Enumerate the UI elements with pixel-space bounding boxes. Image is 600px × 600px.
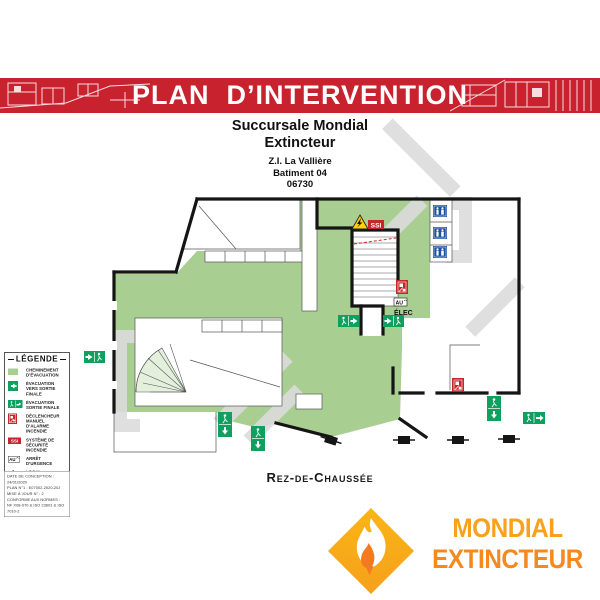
legend-item: ÉVACUATION SORTIE FINALE	[8, 400, 66, 410]
toilets-icon	[433, 205, 447, 258]
logo-line1: MONDIAL	[429, 513, 587, 544]
room-upper-left	[183, 199, 300, 249]
company-logo: MONDIAL EXTINCTEUR	[325, 505, 595, 597]
svg-text:AU: AU	[396, 300, 404, 306]
emergency-stop-icon: AU	[8, 456, 23, 463]
logo-line2: EXTINCTEUR	[429, 544, 587, 575]
legend-item: DÉCLENCHEUR MANUEL D’ALARME INCENDIE	[8, 413, 66, 433]
exit-icon-down	[251, 426, 265, 451]
shaft	[302, 199, 317, 311]
flame-diamond-icon	[325, 505, 417, 597]
door-symbol	[319, 433, 520, 446]
exit-icon-left	[383, 315, 404, 327]
svg-text:AU: AU	[9, 457, 15, 462]
legend-title: LÉGENDE	[8, 355, 66, 364]
legend-item: SSI SYSTÈME DE SÉCURITÉ INCENDIE	[8, 437, 66, 452]
exit-arrow-icon	[8, 381, 23, 391]
exit-icon-down	[218, 412, 232, 437]
ssi-icon: SSI	[368, 220, 384, 229]
intervention-plan-page: SSI AU ÉLEC	[0, 0, 600, 600]
floor-label: Rez-de-Chaussée	[150, 470, 490, 485]
banner-title: PLAN D’INTERVENTION	[0, 78, 600, 113]
manual-call-point-icon	[452, 378, 464, 392]
manual-call-point-icon	[396, 280, 408, 294]
banner: PLAN D’INTERVENTION	[0, 78, 600, 113]
site-address: Z.I. La Vallière	[0, 156, 600, 168]
site-building: Batiment 04	[0, 168, 600, 180]
plan-info-box: DATE DE CONCEPTION : 24/01/2020 PLAN N°1…	[4, 471, 70, 517]
manual-call-point-icon	[8, 413, 23, 424]
svg-text:SSI: SSI	[11, 438, 18, 443]
exit-icon-left	[84, 351, 105, 363]
site-postal-code: 06730	[0, 179, 600, 191]
emergency-stop-icon: AU	[394, 298, 407, 306]
evacuation-path-swatch	[8, 368, 23, 376]
site-name-line1: Succursale Mondial	[0, 118, 600, 135]
info-line: NF X08-070 & ISO 23601 & ISO 7010-2	[7, 503, 67, 515]
legend-item: AU ARRÊT D’URGENCE	[8, 456, 66, 466]
exit-icon-right	[338, 315, 359, 327]
ssi-icon: SSI	[8, 437, 23, 444]
svg-text:SSI: SSI	[371, 222, 382, 229]
exit-icon-down	[487, 396, 501, 421]
info-line: DATE DE CONCEPTION : 24/01/2020	[7, 474, 67, 486]
exit-icon-right	[523, 412, 545, 424]
exit-man-arrow-icon	[8, 400, 23, 409]
closet	[296, 394, 322, 409]
logo-text: MONDIAL EXTINCTEUR	[420, 513, 595, 575]
legend-item: ÉVACUATION VERS SORTIE FINALE	[8, 381, 66, 396]
legend-item: CHEMINEMENT D’ÉVACUATION	[8, 368, 66, 378]
site-name-line2: Extincteur	[0, 135, 600, 152]
site-title-block: Succursale Mondial Extincteur Z.I. La Va…	[0, 118, 600, 191]
